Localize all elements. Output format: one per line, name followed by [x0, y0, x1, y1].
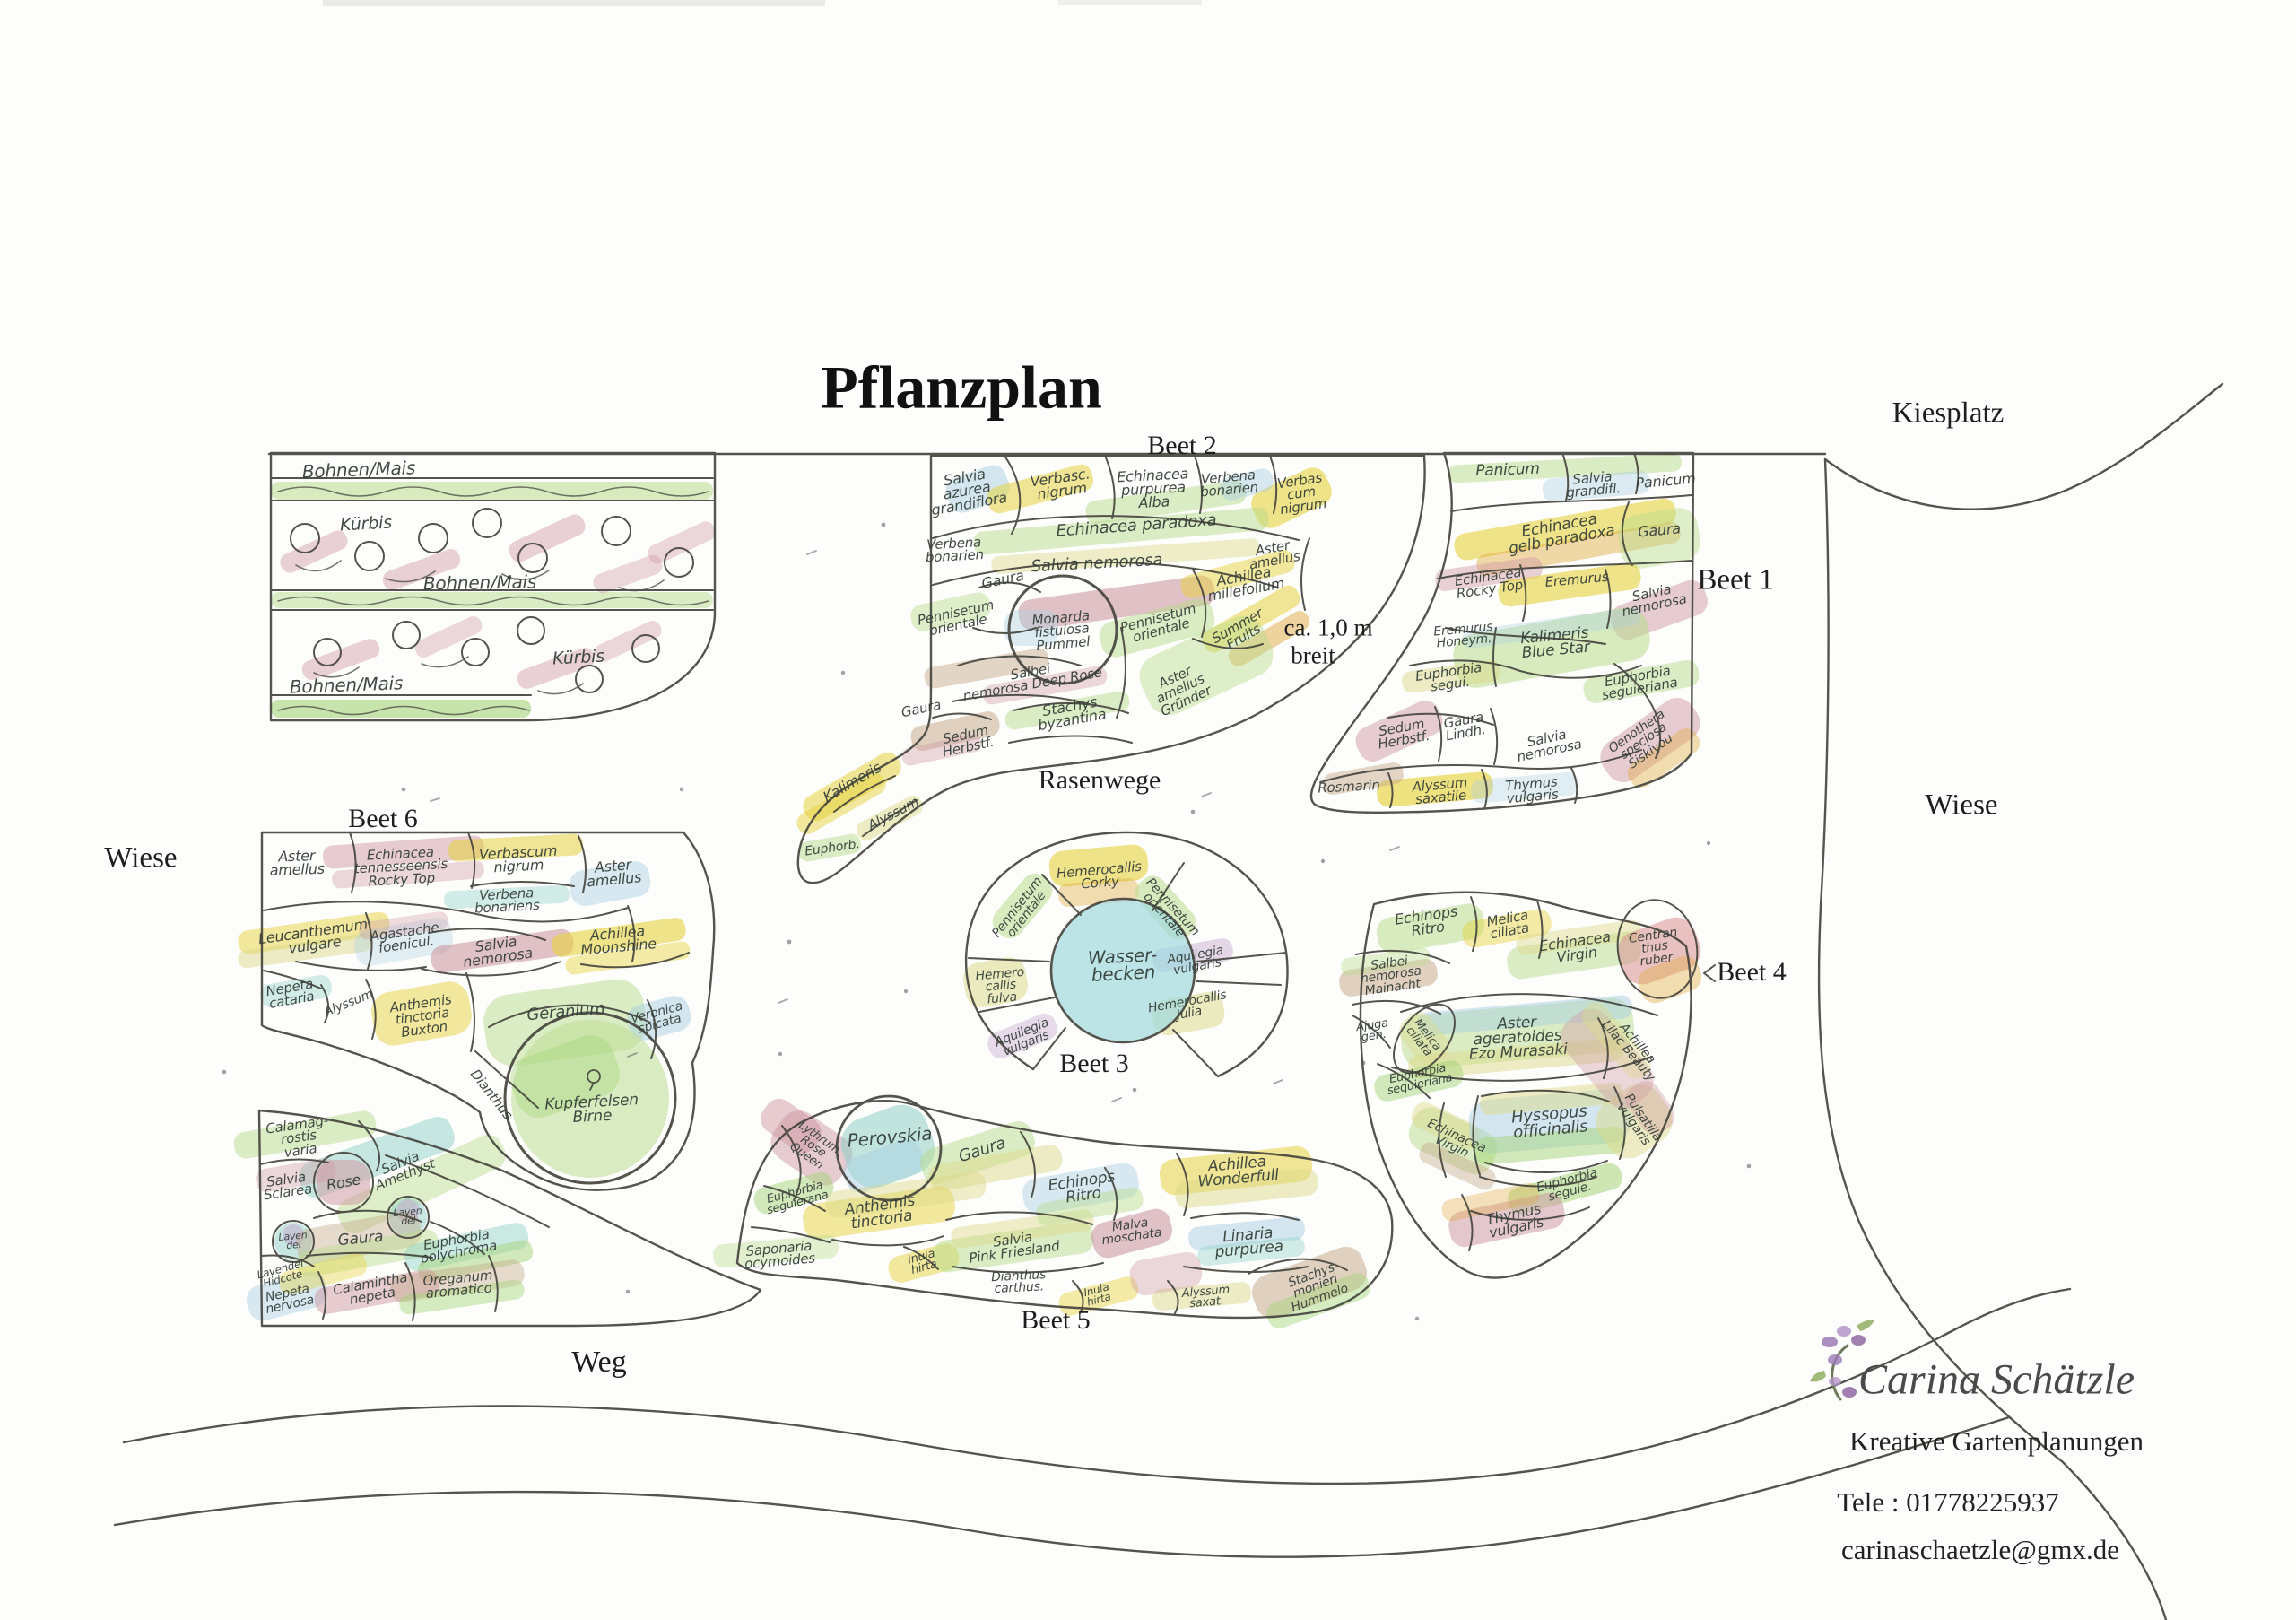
plant-label: Pennisetum orientale	[917, 598, 998, 640]
plant-label: Ajuga gen.	[1355, 1018, 1390, 1044]
plant-label: Rose	[326, 1172, 361, 1192]
plant-label: Linaria purpurea	[1213, 1225, 1284, 1260]
plant-label: Verbena bonariens	[474, 886, 540, 915]
plant-label: Hemerocallis Corky	[1056, 860, 1143, 893]
plant-label: Thymus vulgaris	[1484, 1202, 1544, 1241]
plant-label: Stachys monieri Hummelo	[1282, 1260, 1350, 1314]
plant-label: Verbasc. nigrum	[1030, 466, 1093, 501]
area-label: Beet 2	[1147, 431, 1216, 461]
plant-label: Anthemis tinctoria	[844, 1194, 918, 1232]
area-label: Rasenwege	[1039, 765, 1161, 796]
plant-label: Euphorb.	[804, 839, 861, 858]
plant-label: Lythrum Rose Queen	[784, 1120, 841, 1175]
area-label: Beet 5	[1021, 1305, 1090, 1336]
plant-label: Dianthus carthus.	[991, 1269, 1047, 1296]
plant-label: Melica ciliata	[1403, 1017, 1442, 1059]
plant-label: Wasser- becken	[1088, 946, 1159, 984]
area-label: Weg	[571, 1346, 626, 1380]
plant-label: Salvia Amethyst	[369, 1145, 437, 1193]
plant-label: Verbascum nigrum	[479, 844, 559, 875]
area-label: Wiese	[1925, 789, 1997, 823]
area-label: Beet 6	[348, 804, 417, 834]
plant-label: Eremurus Honeym.	[1433, 622, 1494, 650]
plant-label: Laven del	[393, 1206, 423, 1228]
plant-label: Hemero callis fulva	[975, 967, 1027, 1006]
plant-label: Summer Fruits	[1210, 606, 1271, 657]
plant-label: Salvia nemorosa	[1031, 553, 1162, 575]
plant-label: Salvia nemorosa	[1618, 579, 1688, 618]
plant-label: Salbei nemorosa Mainacht	[1358, 954, 1423, 997]
plant-label: Bohnen/Mais	[302, 459, 416, 480]
plant-label: Aster amellus	[585, 857, 642, 889]
plant-label: Verbena bonarien	[1198, 468, 1258, 499]
plant-label: Laven del	[278, 1231, 309, 1252]
plant-label: Gaura Lindh.	[1443, 710, 1487, 743]
plant-label: Salvia nemorosa	[1513, 725, 1583, 763]
plant-label: Rosmarin	[1318, 779, 1380, 795]
plant-label: Bohnen/Mais	[423, 573, 537, 592]
plant-label: Salvia nemorosa	[460, 933, 534, 970]
plant-label: Echinacea tennesseensis Rocky Top	[353, 845, 448, 888]
area-label: breit	[1291, 642, 1335, 670]
plant-label: Salvia Sclarea	[261, 1170, 313, 1202]
plant-label: Perovskia	[847, 1125, 933, 1149]
plant-label: Echinacea Virgin	[1421, 1118, 1488, 1166]
pflanzplan-page: Pflanzplan Beet 2KiesplatzBeet 1WieseWie…	[0, 0, 2296, 1620]
plant-label: Euphorbia seguierana	[763, 1180, 830, 1217]
plant-label: Gaura	[900, 698, 943, 719]
plant-label: Dianthus	[468, 1067, 515, 1121]
plant-label: Nepeta cataria	[265, 977, 316, 1010]
plant-label: Alyssum	[323, 989, 375, 1019]
contact-subtitle: Kreative Gartenplanungen	[1849, 1425, 2144, 1458]
plant-label: Kupferfelsen Birne	[544, 1093, 639, 1127]
area-label: ca. 1,0 m	[1284, 614, 1373, 642]
plant-label: Geranium	[526, 1001, 605, 1023]
plant-label: Bohnen/Mais	[290, 675, 404, 695]
plant-label: Euphorbia sequieriana	[1384, 1062, 1453, 1097]
plant-label: Aquilegia vulgaris	[1167, 945, 1227, 978]
plant-label: Aster amellus Gründer	[1148, 660, 1213, 718]
plant-label: Gaura	[337, 1230, 384, 1249]
plant-label: Gaura	[957, 1136, 1007, 1165]
plant-label: Alyssum saxatile	[1412, 776, 1469, 806]
plant-label: Inula hirta	[1083, 1282, 1112, 1308]
contact-phone: Tele : 01778225937	[1837, 1486, 2059, 1519]
plant-label: Euphorbia seguieriana	[1598, 664, 1678, 702]
area-label: Beet 3	[1059, 1049, 1128, 1079]
plant-label: Verbas cum nigrum	[1275, 471, 1327, 516]
plant-label: Kalimeris Blue Star	[1520, 626, 1591, 661]
plant-label: Sedum Herbstf.	[1375, 717, 1431, 751]
plant-label: Aster amellus	[269, 849, 325, 877]
plant-label: Salbei nemorosa Deep Rose	[960, 653, 1103, 702]
plant-label: Calamag- rostis varia	[265, 1114, 332, 1161]
plant-label: Salvia azurea grandiflora	[926, 464, 1008, 518]
plant-label: Aster ageratoides Ezo Murasaki	[1467, 1014, 1568, 1062]
plant-label: Achillea Lilac Beauty	[1599, 1012, 1665, 1084]
plant-label: Panicum	[1635, 472, 1696, 491]
plant-label: Pennisetum orientale	[1119, 602, 1201, 647]
plant-label: Stachys byzantina	[1035, 693, 1108, 732]
plant-label: Pulsatilla vulgaris	[1613, 1092, 1664, 1150]
plant-label: Malva moschata	[1100, 1215, 1162, 1248]
plant-label: Monarda fistulosa Pummel	[1031, 609, 1092, 652]
plant-label: Echinops Ritro	[1394, 904, 1460, 940]
plant-label: Echinacea Virgin	[1538, 929, 1613, 966]
plant-label: Oreganum aromatico	[422, 1268, 494, 1300]
plant-label: Echinops Ritro	[1048, 1170, 1118, 1207]
plant-label: Kürbis	[552, 648, 605, 666]
plant-label: Pennisetum orientale	[991, 875, 1055, 947]
plant-label: Euphorbia segui.	[1414, 661, 1484, 696]
plant-label: Anthemis tinctoria Buxton	[389, 993, 457, 1040]
plant-label: Hyssopus officinalis	[1510, 1103, 1588, 1140]
plant-label: Alyssum	[865, 795, 920, 832]
plant-label: Gaura	[1638, 521, 1682, 538]
plant-label: Verbena bonarien	[925, 536, 984, 564]
plant-label: Leucanthemum vulgare	[257, 917, 370, 959]
plant-label: Saponaria ocymoides	[743, 1239, 815, 1270]
contact-email: carinaschaetzle@gmx.de	[1841, 1534, 2119, 1566]
plant-label: Salvia Pink Friesland	[967, 1227, 1061, 1265]
plant-label: Aster amellus	[1246, 537, 1300, 571]
plant-label: Nepeta nervosa	[263, 1283, 316, 1316]
plant-label: Gaura	[980, 569, 1025, 591]
plant-label: Calamintha nepeta	[332, 1271, 411, 1310]
plant-label: Veronica spicata	[630, 1001, 687, 1038]
plant-label: Lavendel Hidcote	[257, 1259, 308, 1291]
plant-label: Salvia grandifl.	[1565, 469, 1622, 500]
area-label: Wiese	[104, 842, 177, 875]
plant-label: Kalimeris	[821, 761, 883, 805]
plant-label: Eremurus	[1544, 570, 1609, 588]
plant-label: Achillea Moonshine	[579, 923, 657, 957]
area-label: Beet 1	[1697, 564, 1773, 597]
plant-label: Melica ciliata	[1486, 909, 1532, 941]
area-label: Beet 4	[1717, 957, 1786, 988]
plant-label: Alyssum saxat.	[1181, 1285, 1231, 1311]
plant-label: Agastache foenicul.	[370, 921, 441, 956]
plant-label: Oenothera speciosa Siskiyou	[1607, 709, 1681, 775]
plant-label: Inula hirta	[907, 1249, 939, 1277]
plant-label: Echinacea purpurea Alba	[1117, 466, 1190, 511]
area-label: Kiesplatz	[1892, 397, 2005, 431]
plant-label: Centran thus ruber	[1628, 927, 1682, 969]
plant-label: Euphorbia seguie.	[1535, 1167, 1602, 1206]
plant-label: Echinacea gelb paradoxa	[1505, 510, 1616, 557]
plant-label: Thymus vulgaris	[1505, 775, 1560, 805]
plant-label: Achillea Wonderfull	[1196, 1154, 1280, 1189]
plant-label: Kürbis	[340, 514, 393, 533]
plant-label: Hemerocallis Julia	[1147, 989, 1230, 1027]
plant-label: Sedum Herbstf.	[939, 723, 996, 759]
plant-label: Echinacea Rocky Top	[1454, 566, 1524, 601]
plant-label: Pennisetum orientale	[1135, 876, 1201, 946]
plant-label: Echinacea paradoxa	[1056, 512, 1217, 539]
contact-name: Carina Schätzle	[1858, 1355, 2135, 1405]
plant-label: Panicum	[1475, 462, 1540, 479]
plant-label: Aquilegia vulgaris	[994, 1017, 1056, 1060]
plant-label: Euphorbia polychroma	[417, 1226, 498, 1265]
plant-label: Achillea millefolium	[1205, 563, 1286, 604]
